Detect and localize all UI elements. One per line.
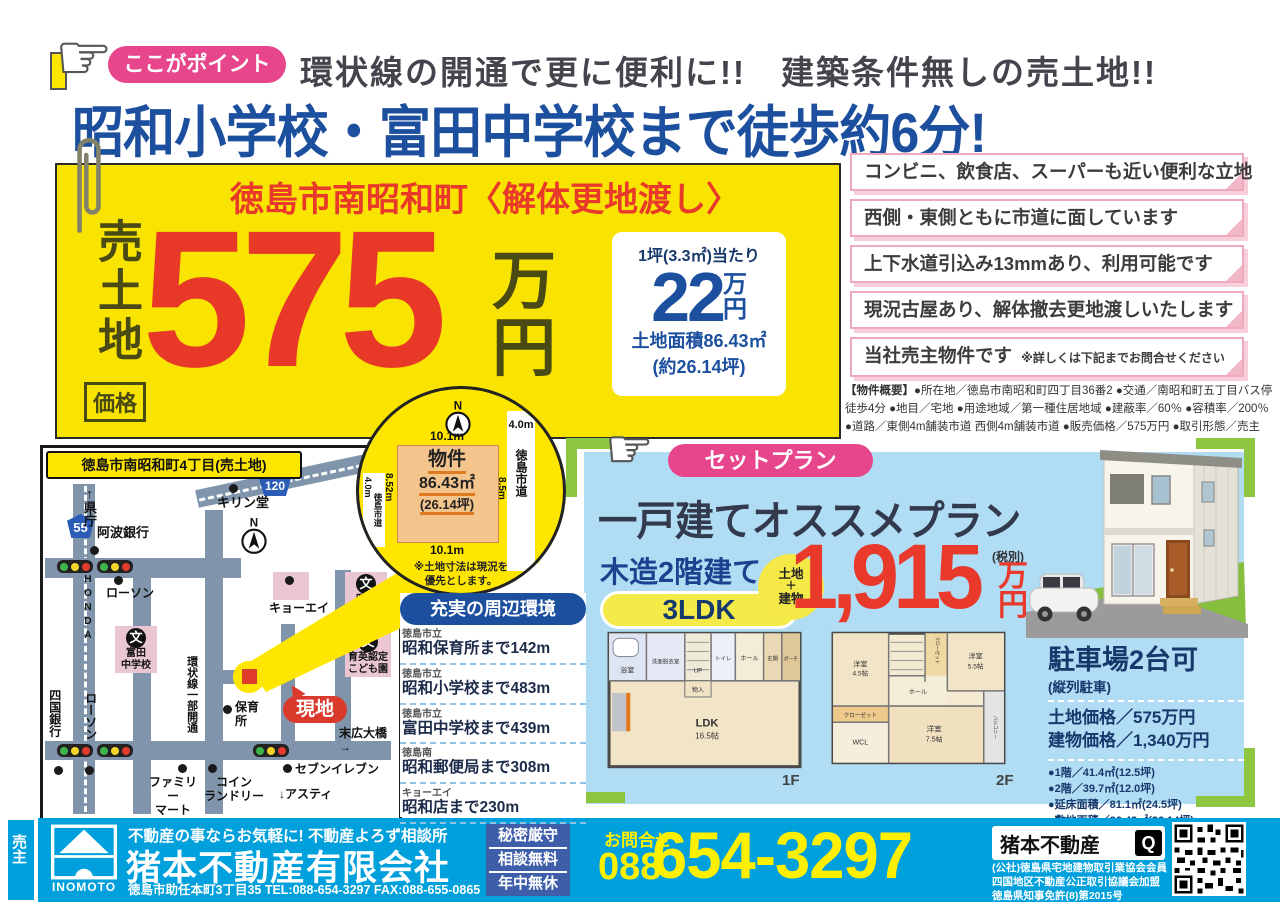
plot-label: 物件 xyxy=(428,450,466,474)
item-name: 富田中学校まで439m xyxy=(402,720,584,738)
map-dot xyxy=(54,766,63,775)
feature-text: コンビニ、飲食店、スーパーも近い便利な立地 xyxy=(864,161,1252,182)
surroundings-panel: 充実の周辺環境 徳島市立 昭和保育所まで142m 徳島市立 昭和小学校まで483… xyxy=(400,593,586,817)
price-unit: 万 円 xyxy=(492,248,556,382)
plot-marker xyxy=(242,669,257,684)
dim-left: 8.52m xyxy=(383,473,394,501)
map-label: ファミリー マート xyxy=(145,776,201,817)
room-label: ホール xyxy=(740,656,758,663)
map-label: コイン ランドリー xyxy=(203,776,265,804)
land-area-line2: (約26.14坪) xyxy=(612,353,786,379)
feature-item: 現況古屋あり、解体撤去更地渡しいたします xyxy=(850,291,1244,329)
feature-text: 当社売主物件です xyxy=(864,345,1012,366)
plan-price: 1,915 xyxy=(790,536,978,619)
map-dot xyxy=(178,764,187,773)
room-label: 洋室 xyxy=(927,723,943,733)
room-label: LDK xyxy=(696,717,719,729)
feature-text: 西側・東側ともに市道に面しています xyxy=(864,207,1178,228)
badge-row: 相談無料 xyxy=(489,849,567,873)
map-label: ↓アスティ xyxy=(279,788,332,802)
map-dot xyxy=(223,705,232,714)
feature-item: 上下水道引込み13mmあり、利用可能です xyxy=(850,245,1244,283)
plan-unit-man: 万 xyxy=(998,562,1028,591)
structure-label: 木造2階建て xyxy=(600,549,761,591)
school-showa-es: 文 昭和 小学校 xyxy=(345,572,387,619)
memberships: (公社)徳島県宅地建物取引業協会会員 四国地区不動産公正取引協議会加盟 徳島県知… xyxy=(992,861,1167,904)
room-label: 浴室 xyxy=(620,666,634,675)
point-badge: ここがポイント xyxy=(108,46,286,83)
setplan-badge: セットプラン xyxy=(668,444,873,477)
traffic-light-icon xyxy=(57,744,93,757)
plan-price-unit: 万 円 xyxy=(998,562,1028,621)
road-name-right: 徳島市道 xyxy=(513,449,530,497)
footer: INOMOTO 不動産の事ならお気軽に! 不動産よろず相談所 猪本不動産有限会社… xyxy=(38,818,1280,902)
map-label: 環状線一部開通 xyxy=(185,656,198,733)
map-dot xyxy=(114,576,123,585)
room-label: 16.5帖 xyxy=(695,730,719,740)
search-text: 猪本不動産 xyxy=(1000,829,1100,858)
feature-text: 現況古屋あり、解体撤去更地渡しいたします xyxy=(864,299,1233,320)
kyoei-block xyxy=(273,572,309,600)
land-price: 土地価格／575万円 xyxy=(1048,706,1244,730)
price-unit-en: 円 xyxy=(492,315,556,382)
map-dot xyxy=(208,764,217,773)
map-label: 保育 所 xyxy=(235,701,259,729)
overview-label: 【物件概要】 xyxy=(845,385,914,397)
price-label: 価格 xyxy=(84,382,146,422)
seller-label: 売主 xyxy=(13,834,29,864)
floorplan-2f: 洋室 4.5帖 クローゼット WCL クローゼット 洋室 5.5帖 ホール 洋室… xyxy=(830,630,1007,772)
school-icon: 文 xyxy=(358,632,378,652)
school-name: 育英認定 こども園 xyxy=(346,652,390,675)
room-label: バルコニー xyxy=(993,716,998,739)
surroundings-item: 徳島市立 富田中学校まで439m xyxy=(400,705,586,745)
item-prefix: 徳島市立 xyxy=(402,629,584,640)
per-tsubo-number: 22 xyxy=(651,264,723,331)
price-unit-man: 万 xyxy=(492,248,556,315)
qr-code xyxy=(1172,822,1246,896)
road-width-right: 4.0m xyxy=(499,419,543,431)
badge-row: 年中無休 xyxy=(489,873,567,895)
school-icon: 文 xyxy=(126,628,146,648)
traffic-light-icon xyxy=(57,560,93,573)
parking-detail: ●2階／39.7㎡(12.0坪) xyxy=(1048,782,1244,798)
house-render xyxy=(1026,424,1248,638)
land-area-line1: 土地面積86.43㎡ xyxy=(612,327,786,353)
plot-tsubo: (26.14坪) xyxy=(420,498,474,515)
map-label: ローソン xyxy=(83,692,97,740)
school-ikuei: 文 育英認定 こども園 xyxy=(345,630,391,677)
item-name: 昭和小学校まで483m xyxy=(402,680,584,698)
seller-strip: 売主 xyxy=(8,820,34,900)
room-label: 洗面脱衣室 xyxy=(652,658,680,666)
school-icon: 文 xyxy=(356,574,376,594)
room-label: ホール xyxy=(909,689,927,696)
service-badge: 秘密厳守 相談無料 年中無休 xyxy=(486,824,570,896)
map-canvas: 55 120 N ↑県庁 阿波銀行 キリン堂 HONDA ローソン 文 富田 中… xyxy=(45,484,391,814)
traffic-light-icon xyxy=(253,744,289,757)
room-label: トイレ xyxy=(715,657,732,663)
surroundings-item: 徳島市立 昭和小学校まで483m xyxy=(400,665,586,705)
dim-right: 8.5m xyxy=(496,477,507,500)
parking-detail: ●延床面積／81.1㎡(24.5坪) xyxy=(1048,798,1244,814)
school-tomida: 文 富田 中学校 xyxy=(115,626,157,673)
map-dot xyxy=(229,484,238,493)
room-label: 洋室 xyxy=(969,652,983,661)
room-label: 5.5帖 xyxy=(968,662,984,671)
map-label: キリン堂 xyxy=(217,496,269,511)
item-name: 昭和保育所まで142m xyxy=(402,640,584,658)
dim-top: 10.1m xyxy=(397,429,497,443)
traffic-light-icon xyxy=(97,560,133,573)
access-map: 55 120 N ↑県庁 阿波銀行 キリン堂 HONDA ローソン 文 富田 中… xyxy=(40,445,402,823)
map-dot xyxy=(85,766,94,775)
genchi-balloon: 現地 xyxy=(283,696,347,723)
parking-detail: ●1階／41.4㎡(12.5坪) xyxy=(1048,766,1244,782)
genchi-label: 現地 xyxy=(296,699,334,720)
header-subtitle: 環状線の開通で更に便利に!! 建築条件無しの売土地!! xyxy=(300,46,1157,94)
flyer-root: ☛ ここがポイント 環状線の開通で更に便利に!! 建築条件無しの売土地!! 昭和… xyxy=(0,0,1280,905)
inomoto-logo-icon xyxy=(50,824,118,880)
per-tsubo-box: 1坪(3.3㎡)当たり 22 万 円 土地面積86.43㎡ (約26.14坪) xyxy=(612,232,786,396)
plot-note: ※土地寸法は現況を 優先とします。 xyxy=(399,561,523,588)
membership-line: 四国地区不動産公正取引協議会加盟 xyxy=(992,875,1167,889)
plan-unit-en: 円 xyxy=(998,591,1028,620)
company-address: 徳島市助任本町3丁目35 TEL:088-654-3297 FAX:088-65… xyxy=(128,879,480,898)
parking-subtitle: (縦列駐車) xyxy=(1048,676,1244,702)
surroundings-item: キョーエイ 昭和店まで230m xyxy=(400,784,586,824)
surroundings-item: 徳島市立 昭和保育所まで142m xyxy=(400,625,586,665)
paperclip-icon xyxy=(66,128,112,236)
room-label: 洋室 xyxy=(853,660,867,669)
page-title: 昭和小学校・富田中学校まで徒歩約6分! xyxy=(72,88,986,169)
item-prefix: キョーエイ xyxy=(402,788,584,799)
map-label: キョーエイ xyxy=(269,602,329,616)
map-label: HONDA xyxy=(82,574,94,644)
school-name: 富田 中学校 xyxy=(116,648,156,671)
feature-text: 上下水道引込み13mmあり、利用可能です xyxy=(864,253,1213,274)
plot-diagram: N 4.0m 徳島市道 4.0m 徳島市道 10.1m 物件 86.43㎡ (2… xyxy=(356,386,566,596)
map-dot xyxy=(90,546,99,555)
room-label: 4.5帖 xyxy=(852,669,868,678)
floor1-label: 1F xyxy=(782,772,800,789)
room-label: UP xyxy=(694,669,702,675)
map-label: セブンイレブン xyxy=(295,763,379,777)
room-label: クローゼット xyxy=(844,711,877,719)
sale-land-label: 売土地 xyxy=(84,218,149,365)
map-label: ローソン xyxy=(106,587,154,601)
floorplan-1f: 浴室 洗面脱衣室 UP トイレ ホール 玄関 ポーチ 物入 LDK 16.5帖 xyxy=(606,630,803,770)
item-prefix: 徳島市立 xyxy=(402,709,584,720)
pointing-hand-icon: ☛ xyxy=(606,424,653,476)
membership-line: 徳島県知事免許(8)第2015号 xyxy=(992,889,1167,903)
feature-note: ※詳しくは下記までお問合せください xyxy=(1021,351,1225,365)
per-unit-en: 円 xyxy=(723,297,747,322)
feature-item: コンビニ、飲食店、スーパーも近い便利な立地 xyxy=(850,153,1244,191)
room-label: 7.5帖 xyxy=(926,734,943,743)
map-dot xyxy=(285,576,294,585)
room-label: クローゼット xyxy=(934,637,941,665)
item-prefix: 徳島市立 xyxy=(402,669,584,680)
map-dot xyxy=(283,764,292,773)
surroundings-title: 充実の周辺環境 xyxy=(400,593,586,625)
room-label: ポーチ xyxy=(784,656,799,663)
membership-line: (公社)徳島県宅地建物取引業協会会員 xyxy=(992,861,1167,875)
map-title-tab: 徳島市南昭和町4丁目(売土地) xyxy=(46,451,302,479)
school-name: 昭和 小学校 xyxy=(346,594,386,617)
item-prefix: 徳島南 xyxy=(402,748,584,759)
web-search-box: 猪本不動産 Q xyxy=(992,826,1165,860)
building-price: 建物価格／1,340万円 xyxy=(1048,729,1244,753)
badge-row: 秘密厳守 xyxy=(489,825,567,849)
plot-area: 86.43㎡ xyxy=(419,475,475,496)
feature-item: 西側・東側ともに市道に面しています xyxy=(850,199,1244,237)
surroundings-item: 徳島南 昭和郵便局まで308m xyxy=(400,744,586,784)
room-label: 物入 xyxy=(692,686,704,694)
per-tsubo-unit: 万 円 xyxy=(723,272,747,322)
search-q-icon: Q xyxy=(1135,830,1162,856)
room-label: WCL xyxy=(852,738,868,746)
map-label: 末広大橋→ xyxy=(339,727,391,755)
price-number: 575 xyxy=(142,212,437,388)
room-label: 玄関 xyxy=(767,655,779,663)
map-label: 四国銀行 xyxy=(47,689,61,737)
phone-number: 654-3297 xyxy=(652,822,912,888)
map-label: 阿波銀行 xyxy=(97,526,149,541)
logo-text: INOMOTO xyxy=(44,880,124,894)
parking-title: 駐車場2台可 xyxy=(1048,646,1244,676)
item-name: 昭和店まで230m xyxy=(402,799,584,817)
per-unit-man: 万 xyxy=(723,272,747,297)
parking-info: 駐車場2台可 (縦列駐車) 土地価格／575万円 建物価格／1,340万円 ●1… xyxy=(1048,646,1244,830)
floor2-label: 2F xyxy=(996,772,1014,789)
compass-icon: N xyxy=(241,516,267,556)
traffic-light-icon xyxy=(97,744,133,757)
compass-n: N xyxy=(250,518,258,530)
dim-bottom: 10.1m xyxy=(397,543,497,557)
pointing-hand-icon: ☛ xyxy=(56,28,112,90)
item-name: 昭和郵便局まで308m xyxy=(402,759,584,777)
map-label: ↑県庁 xyxy=(81,486,96,527)
feature-item: 当社売主物件です ※詳しくは下記までお問合せください xyxy=(850,337,1244,377)
compass-n: N xyxy=(454,401,462,413)
